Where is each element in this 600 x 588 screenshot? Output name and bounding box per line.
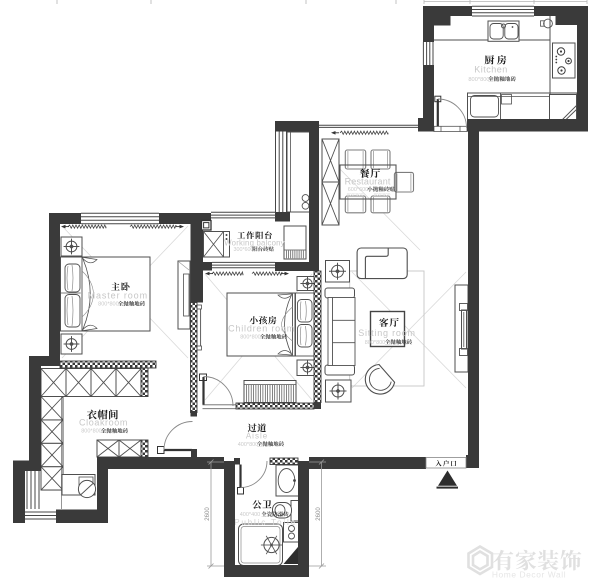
svg-text:Sitting room: Sitting room xyxy=(358,328,416,338)
svg-text:Home Decor Wall: Home Decor Wall xyxy=(492,570,566,580)
svg-text:Master room: Master room xyxy=(88,290,148,300)
svg-text:800*800: 800*800 xyxy=(374,192,391,197)
svg-text:2600: 2600 xyxy=(316,507,322,521)
svg-text:400*800: 400*800 xyxy=(238,442,259,448)
svg-text:Aisle: Aisle xyxy=(246,432,268,441)
svg-text:Cloakroom: Cloakroom xyxy=(79,418,128,428)
svg-text:2600: 2600 xyxy=(205,507,211,521)
svg-text:Kitchen: Kitchen xyxy=(474,65,508,75)
svg-text:800*800: 800*800 xyxy=(468,77,489,83)
svg-text:800*800: 800*800 xyxy=(98,302,119,308)
svg-text:800*800: 800*800 xyxy=(81,429,102,435)
svg-text:Restaurant: Restaurant xyxy=(345,177,391,187)
svg-text:800*800: 800*800 xyxy=(240,335,261,341)
svg-text:300*600: 300*600 xyxy=(233,247,253,253)
svg-text:Children room: Children room xyxy=(228,324,295,334)
svg-text:800*800: 800*800 xyxy=(365,340,386,346)
svg-text:800*800: 800*800 xyxy=(347,192,364,197)
svg-text:Public Toile: Public Toile xyxy=(234,518,297,527)
